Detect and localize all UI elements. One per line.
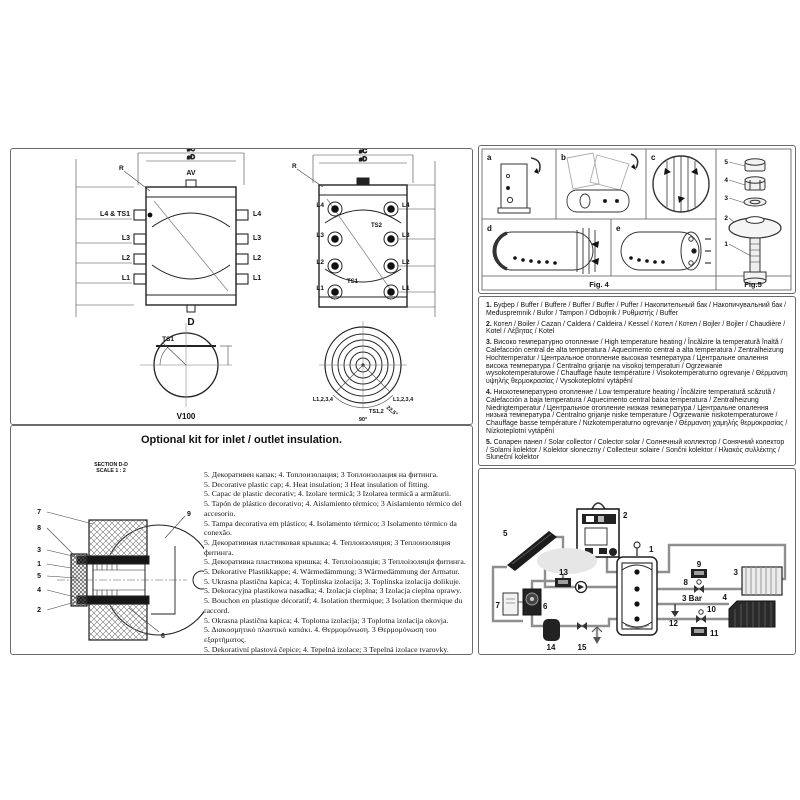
legend-item: 4. Нискотемпературно отопление / Low tem… xyxy=(486,389,788,436)
tank2-left-port-label: L4 xyxy=(316,202,324,209)
fig5-callout: 3 xyxy=(724,195,728,202)
fig4-step-d xyxy=(493,228,599,274)
system-schematic: 1 2 5 7 xyxy=(479,469,795,654)
schematic-label-1: 1 xyxy=(649,545,654,554)
valve-10-handle xyxy=(699,610,703,614)
legend-item: 5. Соларен панел / Solar collector / Col… xyxy=(486,439,788,462)
kit-line: 5. Ukrasna plastična kapica; 4. Toplinsk… xyxy=(204,577,470,587)
tank1-caption: V100 xyxy=(177,412,196,421)
radiator-high-temp xyxy=(742,567,782,595)
fig5-callout: 2 xyxy=(724,215,728,222)
fig4-cell-a-label: a xyxy=(487,153,492,162)
kit-callout-5: 5 xyxy=(37,573,41,580)
legend-item: 2. Котел / Boiler / Cazan / Caldera / Ca… xyxy=(486,321,788,337)
optional-kit-title: Optional kit for inlet / outlet insulati… xyxy=(11,434,472,446)
valve-10 xyxy=(696,615,706,623)
kit-line: 5. Tapón de plástico decorativo; 4. Aisl… xyxy=(204,499,470,518)
tank1-ts1-label: TS1 xyxy=(162,336,174,343)
fig4-fig5-drawing: a b c d e xyxy=(479,146,795,293)
tank1-radius-label: R xyxy=(119,165,124,172)
tank2-right-port-label: L2 xyxy=(402,259,410,266)
tank2-tv-ts-label: TS1,2 xyxy=(369,409,384,415)
valve-8-handle xyxy=(697,580,701,584)
kit-callout-9: 9 xyxy=(187,511,191,518)
tank1-dim-outer: ⌀C xyxy=(187,149,196,153)
schematic-label-13: 13 xyxy=(559,568,568,577)
fig4-step-b xyxy=(567,153,638,212)
drain-arrow xyxy=(593,637,601,644)
valve-8 xyxy=(694,585,704,593)
fig5-callout: 4 xyxy=(724,177,728,184)
kit-translation-list: 5. Декоративен капак; 4. Топлоизолация; … xyxy=(204,470,470,654)
control-box xyxy=(503,593,518,615)
tank1-left-port-label: L3 xyxy=(122,235,130,242)
tank1-left-port-label: L2 xyxy=(122,255,130,262)
fig4-step-a xyxy=(498,158,540,213)
tank1-front-view: ⌀C ⌀D R AV xyxy=(76,149,261,421)
tank2-left-port-label: L3 xyxy=(316,232,324,239)
schematic-label-11: 11 xyxy=(710,629,719,638)
tank1-right-port-label: L1 xyxy=(253,275,261,282)
tank2-tv-angle2-label: 22,5° xyxy=(385,405,399,418)
safety-valve xyxy=(671,604,679,617)
tank2-radius-label: R xyxy=(292,163,297,170)
kit-callout-8: 8 xyxy=(37,525,41,532)
kit-line: 5. Декоративная пластиковая крышка; 4. Т… xyxy=(204,538,470,557)
optional-kit-panel: Optional kit for inlet / outlet insulati… xyxy=(10,425,473,655)
figures-panel: a b c d e xyxy=(478,145,796,294)
schematic-label-8: 8 xyxy=(684,578,689,587)
fig4-step-e xyxy=(621,232,711,270)
fig4-caption: Fig. 4 xyxy=(589,280,609,289)
expansion-vessel xyxy=(543,619,560,641)
fig5-callout: 1 xyxy=(724,241,728,248)
tank1-top-view: TS1 V100 xyxy=(140,323,232,421)
schematic-label-14: 14 xyxy=(547,643,556,652)
kit-line: 5. Διακοσμητικό πλαστικό καπάκι. 4. Θερμ… xyxy=(204,625,470,644)
tank1-right-port-label: L4 xyxy=(253,211,261,218)
tank2-ts2-label: TS2 xyxy=(371,223,383,229)
schematic-label-4: 4 xyxy=(723,593,728,602)
kit-callout-7: 7 xyxy=(37,509,41,516)
kit-line: 5. Декоративна пластикова кришка; 4. Теп… xyxy=(204,557,470,567)
kit-callout-3: 3 xyxy=(37,547,41,554)
legend-text: 1. Буфер / Buffer / Buffere / Buffer / B… xyxy=(479,297,795,465)
schematic-label-12: 12 xyxy=(669,619,678,628)
kit-line: 5. Decorative plastic cap; 4. Heat insul… xyxy=(204,480,470,490)
tank2-top-view: L1,2,3,4 L1,2,3,4 TS1,2 22,5° 90° V160 ,… xyxy=(313,321,414,424)
boiler xyxy=(577,503,619,557)
tank2-ts1-label: TS1 xyxy=(347,279,359,285)
schematic-label-9: 9 xyxy=(697,560,702,569)
kit-callout-1: 1 xyxy=(37,561,41,568)
kit-callout-6: 6 xyxy=(161,633,165,640)
kit-callout-2: 2 xyxy=(37,607,41,614)
tank1-dim-inner: ⌀D xyxy=(187,155,196,161)
tank1-right-port-label: L2 xyxy=(253,255,261,262)
fig5-callout: 5 xyxy=(724,159,728,166)
radiator-low-temp xyxy=(729,601,775,627)
solar-pump-station xyxy=(523,589,541,615)
tank1-left-port-label: L4 & TS1 xyxy=(100,211,130,218)
tank1-av-label: AV xyxy=(186,170,196,177)
kit-line: 5. Bouchon en plastique décoratif; 4. Is… xyxy=(204,596,470,615)
kit-line: 5. Capac de plastic decorativ; 4. Izolar… xyxy=(204,489,470,499)
tank-drawings-panel: ⌀C ⌀D R AV xyxy=(10,148,473,425)
fig5-drawing xyxy=(729,159,781,284)
valve-15 xyxy=(577,622,587,630)
tank1-drain-label: D xyxy=(187,317,194,328)
fig5-caption: Fig.5 xyxy=(744,280,762,289)
tank2-left-port-label: L1 xyxy=(316,285,324,292)
tank2-front-view: ⌀C ⌀D R xyxy=(292,149,435,424)
schematic-panel: 1 2 5 7 xyxy=(478,468,796,655)
kit-line: 5. Dekoracyjna plastikowa nasadka; 4. Iz… xyxy=(204,586,470,596)
kit-line: 5. Okrasna plastična kapica; 4. Toplotna… xyxy=(204,616,470,626)
section-dd-drawing: SECTION D-D SCALE 1 : 2 xyxy=(19,454,204,654)
kit-callout-4: 4 xyxy=(37,587,41,594)
tank2-tv-angle-label: 90° xyxy=(359,417,367,423)
tank2-right-port-label: L3 xyxy=(402,232,410,239)
fig4-cell-e-label: e xyxy=(616,224,621,233)
tank2-tv-right-label: L1,2,3,4 xyxy=(393,397,414,403)
air-vent-valve xyxy=(634,542,640,548)
schematic-label-6: 6 xyxy=(543,602,548,611)
legend-panel: 1. Буфер / Buffer / Buffere / Buffer / B… xyxy=(478,296,796,466)
tank2-dim-outer: ⌀C xyxy=(359,149,368,155)
fig4-cell-c-label: c xyxy=(651,153,656,162)
fig4-cell-d-label: d xyxy=(487,224,492,233)
tank2-dim-inner: ⌀D xyxy=(359,157,368,163)
pressure-label: 3 Bar xyxy=(682,594,702,603)
schematic-label-3: 3 xyxy=(734,568,739,577)
legend-item: 3. Високо температурно отопление / High … xyxy=(486,339,788,386)
tank-drawings: ⌀C ⌀D R AV xyxy=(11,149,472,424)
fig4-cell-b-label: b xyxy=(561,153,566,162)
tank1-left-port-label: L1 xyxy=(122,275,130,282)
legend-item: 1. Буфер / Buffer / Buffere / Buffer / B… xyxy=(486,302,788,318)
tank2-right-port-label: L4 xyxy=(402,202,410,209)
tank2-left-port-label: L2 xyxy=(316,259,324,266)
schematic-label-15: 15 xyxy=(578,643,587,652)
schematic-label-2: 2 xyxy=(623,511,628,520)
tank2-tv-left-label: L1,2,3,4 xyxy=(313,397,334,403)
tank2-right-port-label: L1 xyxy=(402,285,410,292)
buffer-tank xyxy=(617,542,657,635)
schematic-label-10: 10 xyxy=(707,605,716,614)
schematic-label-5: 5 xyxy=(503,529,508,538)
manual-page: ⌀C ⌀D R AV xyxy=(0,0,800,800)
kit-line: 5. Dekorative Plastikkappe; 4. Wärmedämm… xyxy=(204,567,470,577)
section-scale: SCALE 1 : 2 xyxy=(96,468,126,474)
kit-line: 5. Декоративен капак; 4. Топлоизолация; … xyxy=(204,470,470,480)
tank1-right-port-label: L3 xyxy=(253,235,261,242)
kit-line: 5. Tampa decorativa em plástico; 4. Isol… xyxy=(204,519,470,538)
kit-line: 5. Dekorativní plastová čepice; 4. Tepel… xyxy=(204,645,470,655)
fig4-step-c xyxy=(653,156,709,212)
schematic-label-7: 7 xyxy=(496,601,501,610)
